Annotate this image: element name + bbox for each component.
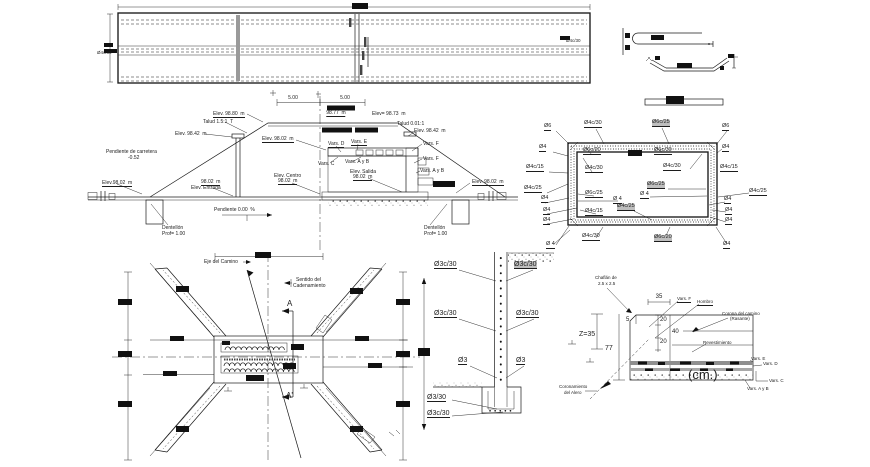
dim-label: 40 bbox=[672, 329, 679, 335]
units-label: (cm.) bbox=[688, 368, 718, 381]
varilla-label: Vars. F bbox=[677, 297, 691, 303]
rebar-spacing-label: Ø6c/20 bbox=[654, 235, 672, 242]
slope-note: Pendiente 0.00 % bbox=[214, 208, 255, 213]
rebar-diameter-label: Ø4 bbox=[543, 218, 550, 225]
rebar-diameter-label: Ø 4 bbox=[546, 242, 555, 249]
rebar-spacing-label: Ø4c/30 bbox=[582, 234, 600, 241]
elevation-label: Elev.98.02 m bbox=[102, 181, 132, 187]
axis-label: Eje del Camino bbox=[204, 260, 238, 265]
varilla-label: Vars. D bbox=[328, 142, 344, 148]
rebar-diameter-label: Ø4 bbox=[722, 145, 729, 152]
varilla-label: Vars. D bbox=[763, 362, 778, 367]
varilla-label: Vars. A y B bbox=[420, 169, 444, 174]
rebar-diameter-label: Ø4 bbox=[541, 196, 548, 203]
dim-label: 5.00 bbox=[288, 96, 298, 101]
rebar-diameter-label: Ø4 bbox=[725, 208, 732, 215]
dim-label: 5.00 bbox=[340, 96, 350, 101]
rebar-spacing-label: Ø3c/30 bbox=[514, 261, 537, 269]
rebar-spacing-label: Ø3c/30 bbox=[427, 410, 450, 418]
rebar-spacing-label: Ø4c/30 bbox=[663, 164, 681, 171]
rebar-spacing-label: Ø6c/30 bbox=[654, 148, 672, 155]
rebar-diameter-label: Ø4 bbox=[723, 242, 730, 249]
rebar-diameter-label: Ø4 bbox=[725, 218, 732, 225]
varilla-label: Vars. C bbox=[318, 162, 334, 167]
toe-wall-label: Prof= 1.00 bbox=[162, 232, 185, 237]
elevation-label: Elev. Entrada bbox=[191, 186, 221, 191]
elevation-label: Elev. 98.42 m bbox=[414, 129, 446, 134]
rebar-spacing-label: Ø4c/30 bbox=[584, 121, 602, 128]
wingwall-note: del Alero bbox=[564, 391, 582, 396]
elevation-label: 98.77 m bbox=[326, 111, 345, 117]
axis-label: Cadenamiento bbox=[293, 284, 326, 289]
rebar-diameter-label: Ø4 bbox=[543, 208, 550, 215]
elevation-label: Elev= 98.73 m bbox=[372, 112, 406, 117]
elevation-label: Elev. 98.42 m bbox=[175, 132, 207, 137]
rebar-diameter-label: Ø6 bbox=[722, 124, 729, 131]
rebar-spacing-label: Ø4c/15 bbox=[585, 209, 603, 216]
rebar-spacing-label: Ø4c/15 bbox=[720, 165, 738, 172]
chamfer-note: Chaflán de bbox=[595, 276, 617, 281]
varilla-label: Vars. F bbox=[423, 157, 439, 162]
slope-label: Talud 1.5:1 T bbox=[203, 120, 233, 125]
dim-label: 35 bbox=[656, 294, 663, 300]
road-part-label: Revestimiento bbox=[703, 341, 732, 346]
varilla-label: Vars. A y B bbox=[747, 387, 769, 392]
labels-layer: Ø4c/30Ø4c/305.005.0098.77 mElev. 98.80 m… bbox=[0, 0, 870, 467]
rebar-spacing-label: Ø4c/15 bbox=[526, 165, 544, 172]
elevation-label: Elev. 98.02 m bbox=[262, 137, 294, 143]
wingwall-note: Coronamiento bbox=[559, 385, 587, 390]
rebar-spacing-label: Ø4c/25 bbox=[617, 204, 635, 211]
dim-label: Z=35 bbox=[579, 331, 595, 338]
rebar-spacing-label: Ø6c/25 bbox=[647, 182, 665, 189]
toe-wall-label: Prof= 1.00 bbox=[424, 232, 447, 237]
rebar-diameter-label: Ø4 bbox=[539, 145, 546, 152]
rebar-spacing-label: Ø4c/30 bbox=[566, 39, 581, 44]
elevation-label: 98.02 m bbox=[353, 175, 372, 181]
rebar-diameter-label: Ø4 bbox=[724, 197, 731, 204]
rebar-diameter-label: Ø 4 bbox=[640, 192, 649, 199]
dim-label: 77 bbox=[605, 345, 613, 352]
varilla-label: Vars. A y B bbox=[345, 160, 369, 165]
elevation-label: 98.02 m bbox=[278, 179, 297, 185]
rebar-spacing-label: Ø4c/30 bbox=[97, 51, 112, 56]
drawing-sheet: { "meta": { "drawing_type": "box culvert… bbox=[0, 0, 870, 467]
rebar-spacing-label: Ø6c/25 bbox=[652, 120, 670, 127]
chamfer-note: 2.5 x 2.5 bbox=[598, 282, 615, 287]
dim-label: 20 bbox=[660, 317, 667, 323]
varilla-label: Vars. E bbox=[351, 140, 367, 146]
rebar-spacing-label: Ø4c/25 bbox=[524, 186, 542, 193]
rebar-spacing-label: Ø3/30 bbox=[427, 394, 446, 402]
rebar-spacing-label: Ø6c/25 bbox=[585, 191, 603, 198]
road-part-label: (Rasante) bbox=[730, 317, 750, 322]
rebar-diameter-label: Ø6 bbox=[544, 124, 551, 131]
varilla-label: Vars. C bbox=[769, 379, 784, 384]
rebar-spacing-label: Ø3c/30 bbox=[434, 310, 457, 318]
dim-label: 20 bbox=[660, 339, 667, 345]
dim-label: 5 bbox=[626, 317, 629, 323]
rebar-spacing-label: Ø6c/20 bbox=[583, 148, 601, 155]
varilla-label: Vars. F bbox=[423, 142, 439, 147]
rebar-spacing-label: Ø3c/30 bbox=[434, 261, 457, 269]
elevation-label: Elev. 98.02 m bbox=[472, 180, 504, 186]
rebar-spacing-label: Ø4c/30 bbox=[585, 166, 603, 173]
section-marker: A bbox=[287, 300, 292, 308]
rebar-diameter-label: Ø3 bbox=[516, 357, 525, 365]
road-part-label: Hombro bbox=[697, 300, 713, 306]
slope-label: Talud 0.01:1 bbox=[397, 122, 424, 127]
rebar-spacing-label: Ø3c/30 bbox=[516, 310, 539, 318]
slope-note: -0.52 bbox=[128, 156, 139, 161]
rebar-spacing-label: Ø4c/25 bbox=[749, 189, 767, 196]
elevation-label: Elev. 98.80 m bbox=[213, 112, 245, 118]
section-marker: A' bbox=[286, 392, 293, 400]
rebar-diameter-label: Ø3 bbox=[458, 357, 467, 365]
